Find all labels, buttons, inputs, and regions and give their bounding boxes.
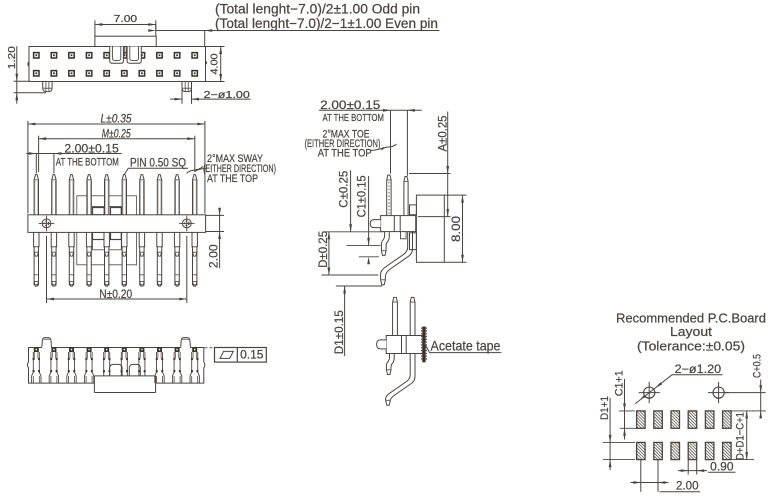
svg-text:AT THE BOTTOM: AT THE BOTTOM [323,112,384,124]
svg-text:AT THE TOP: AT THE TOP [318,147,372,159]
svg-text:2.00±0.15: 2.00±0.15 [320,98,381,112]
svg-text:C+0.5: C+0.5 [751,354,763,378]
svg-text:D1+1: D1+1 [599,396,611,420]
svg-text:2.00: 2.00 [208,244,220,268]
svg-text:8.00: 8.00 [449,216,463,242]
svg-text:AT THE TOP: AT THE TOP [207,173,258,185]
svg-text:AT THE BOTTOM: AT THE BOTTOM [56,156,119,168]
svg-text:D+D1−C+1: D+D1−C+1 [735,412,747,460]
svg-text:2−ø1.20: 2−ø1.20 [675,364,722,376]
svg-text:Layout: Layout [670,324,712,339]
svg-text:C±0.25: C±0.25 [339,171,351,208]
svg-text:N±0.20: N±0.20 [99,289,132,301]
svg-text:M±0.25: M±0.25 [102,129,131,141]
svg-text:(Tolerance:±0.05): (Tolerance:±0.05) [637,339,745,354]
svg-text:1.20: 1.20 [7,46,18,70]
svg-text:2−ø1.00: 2−ø1.00 [204,90,251,101]
svg-text:C1+1: C1+1 [614,370,626,396]
svg-text:(Total lenght−7.0)/2±1.00 Odd: (Total lenght−7.0)/2±1.00 Odd pin [215,1,420,16]
svg-text:C1±0.15: C1±0.15 [357,175,369,217]
svg-text:(Total lenght−7.0)/2−1±1.00 E: (Total lenght−7.0)/2−1±1.00 Even pin [215,16,438,31]
svg-text:L±0.35: L±0.35 [101,114,133,126]
svg-text:7.00: 7.00 [114,14,138,25]
svg-text:2.00: 2.00 [676,479,699,493]
svg-text:4.00: 4.00 [209,53,220,74]
svg-text:0.90: 0.90 [710,459,734,473]
svg-text:0.15: 0.15 [240,349,263,361]
svg-text:Acetate tape: Acetate tape [431,338,501,354]
